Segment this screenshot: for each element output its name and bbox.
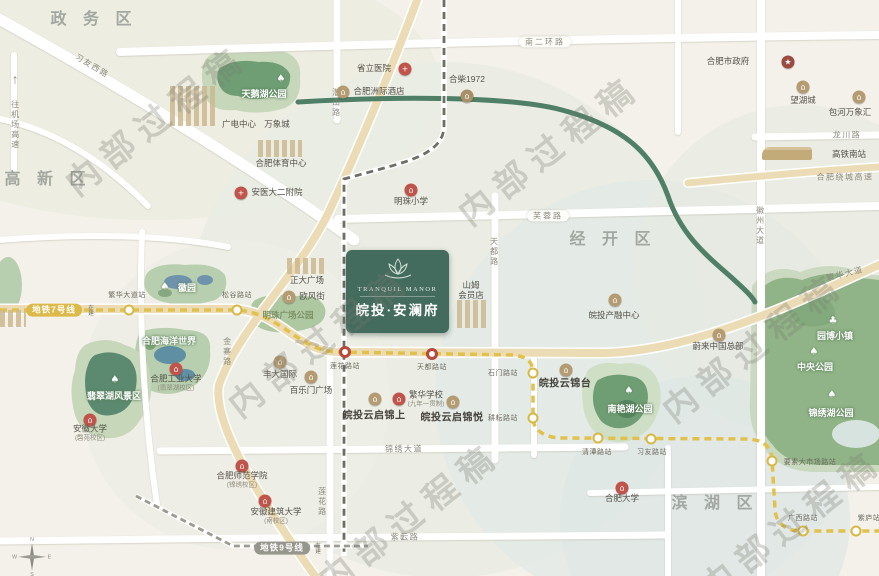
watermark: 内部过程稿 (53, 31, 257, 205)
location-map: 政 务 区高 新 区经 开 区滨 湖 区南二环路芙蓉路习友西路潜山路龙川路合肥绕… (0, 0, 879, 576)
watermark: 内部过程稿 (446, 61, 650, 235)
watermark: 内部过程稿 (306, 428, 510, 576)
watermark: 内部过程稿 (650, 258, 854, 432)
watermark: 内部过程稿 (688, 435, 879, 576)
watermark-layer: 内部过程稿内部过程稿内部过程稿内部过程稿内部过程稿内部过程稿 (0, 0, 879, 576)
watermark: 内部过程稿 (216, 253, 420, 427)
